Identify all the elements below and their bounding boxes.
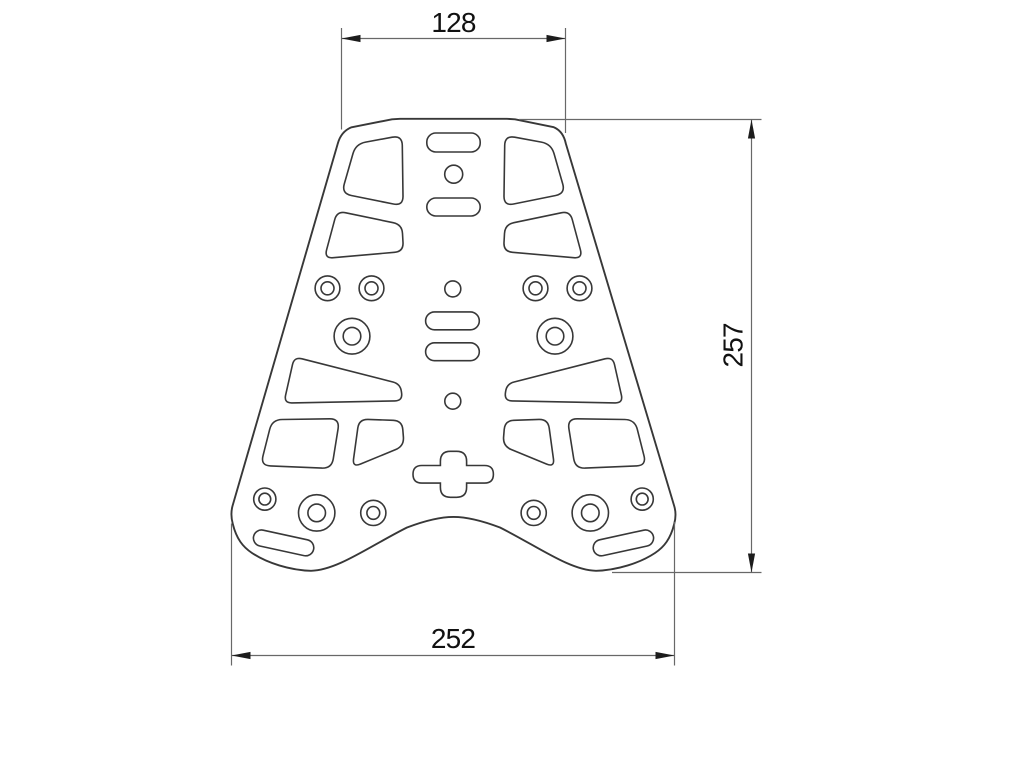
svg-text:128: 128 bbox=[431, 7, 476, 38]
svg-text:252: 252 bbox=[431, 623, 476, 654]
svg-text:257: 257 bbox=[718, 323, 749, 368]
